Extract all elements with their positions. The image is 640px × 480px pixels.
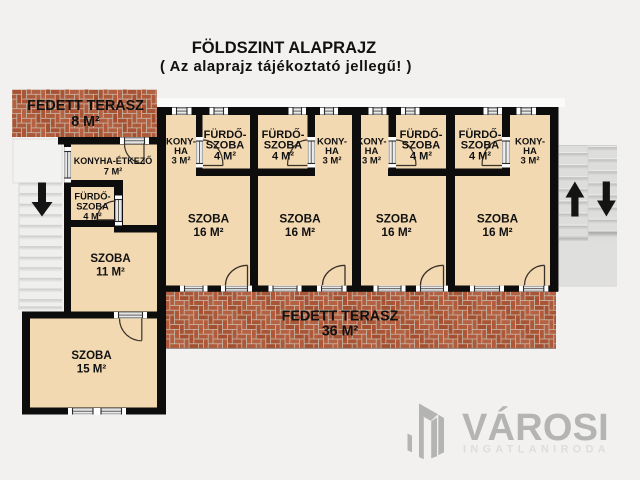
svg-text:SZOBA: SZOBA — [90, 253, 130, 265]
svg-text:VÁROSI: VÁROSI — [462, 405, 609, 449]
svg-text:8 M²: 8 M² — [71, 114, 100, 130]
svg-text:SZOBA: SZOBA — [71, 350, 111, 362]
svg-text:SZOBA: SZOBA — [376, 212, 418, 226]
svg-text:SZOBA: SZOBA — [279, 212, 321, 226]
svg-text:11 M²: 11 M² — [96, 266, 125, 278]
svg-text:KONYHA-ÉTKEZŐ: KONYHA-ÉTKEZŐ — [74, 155, 153, 166]
svg-text:16 M²: 16 M² — [482, 225, 512, 239]
svg-text:INGATLANIRODA: INGATLANIRODA — [463, 444, 610, 456]
svg-text:4 M²: 4 M² — [410, 150, 432, 162]
svg-text:16 M²: 16 M² — [285, 225, 315, 239]
svg-text:3 M²: 3 M² — [521, 155, 540, 166]
svg-text:16 M²: 16 M² — [193, 225, 223, 239]
svg-text:4 M²: 4 M² — [272, 150, 294, 162]
svg-text:( Az alaprajz tájékoztató jell: ( Az alaprajz tájékoztató jellegű! ) — [160, 59, 412, 75]
svg-text:FÖLDSZINT ALAPRAJZ: FÖLDSZINT ALAPRAJZ — [192, 38, 377, 57]
svg-text:SZOBA: SZOBA — [76, 201, 109, 211]
svg-text:FEDETT TERASZ: FEDETT TERASZ — [282, 308, 399, 324]
svg-text:3 M²: 3 M² — [172, 155, 191, 166]
svg-text:15 M²: 15 M² — [77, 364, 107, 376]
svg-text:16 M²: 16 M² — [381, 225, 411, 239]
svg-text:4 M²: 4 M² — [83, 211, 102, 221]
svg-text:FÜRDŐ-: FÜRDŐ- — [74, 190, 110, 201]
svg-text:4 M²: 4 M² — [469, 150, 491, 162]
svg-text:3 M²: 3 M² — [323, 155, 342, 166]
svg-text:FEDETT TERASZ: FEDETT TERASZ — [27, 98, 144, 114]
svg-text:7 M²: 7 M² — [104, 166, 123, 176]
svg-text:3 M²: 3 M² — [362, 155, 381, 166]
svg-text:SZOBA: SZOBA — [188, 212, 230, 226]
svg-text:4 M²: 4 M² — [214, 150, 236, 162]
svg-text:36 M²: 36 M² — [322, 323, 359, 339]
svg-text:SZOBA: SZOBA — [477, 212, 519, 226]
